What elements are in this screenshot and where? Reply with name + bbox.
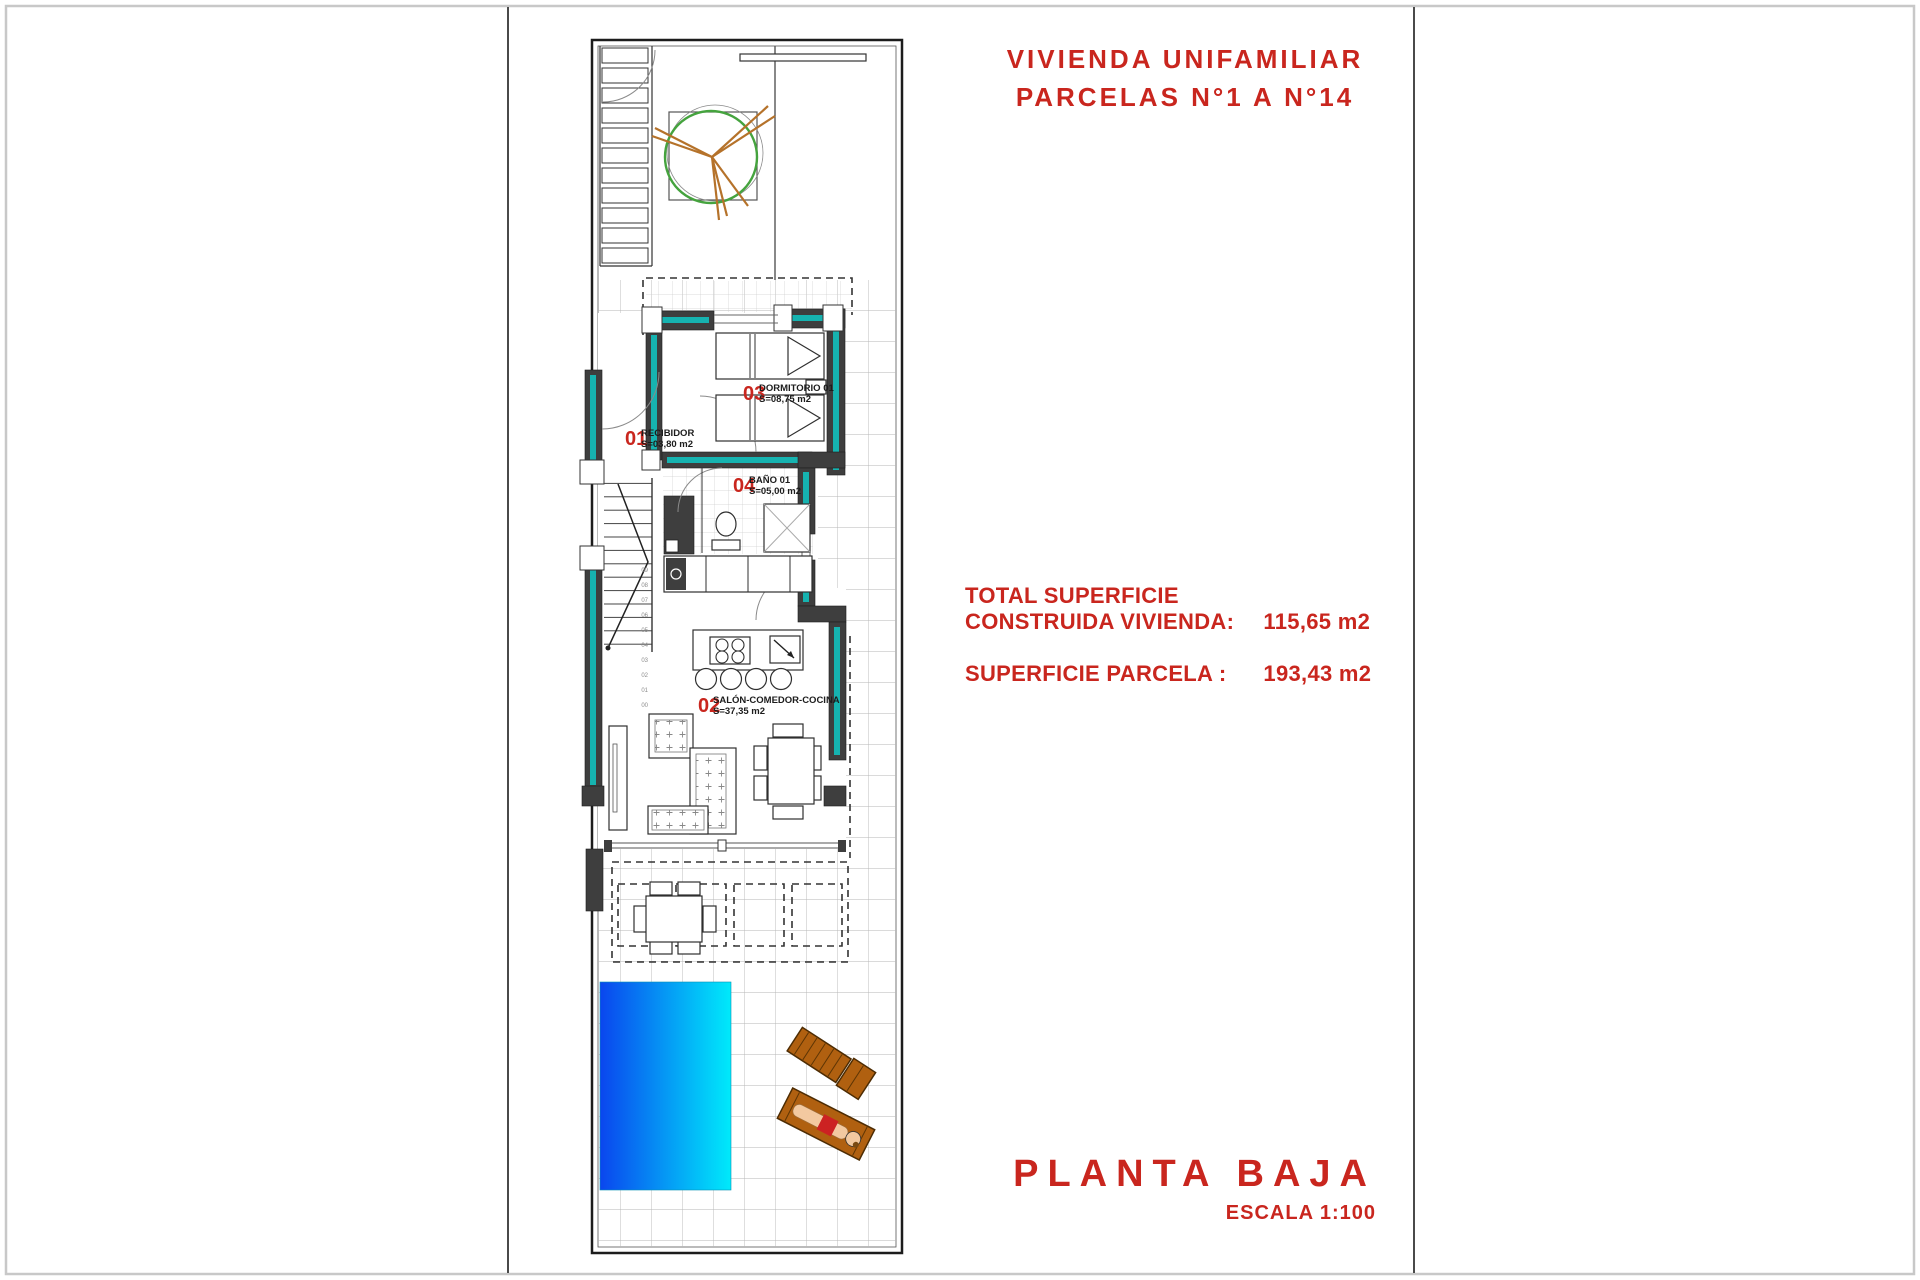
plan-footer: PLANTA BAJA ESCALA 1:100 [1000,1152,1376,1225]
floor-plan-drawing: 09 08 07 06 05 04 03 02 01 00 [0,0,1920,1280]
built-surface-value: 115,65 m2 [1263,609,1370,634]
room-area-salon: S=37,35 m2 [713,706,765,717]
page-border [6,6,1914,1274]
drawing-title: VIVIENDA UNIFAMILIAR PARCELAS N°1 A N°14 [960,40,1410,116]
surface-summary: TOTAL SUPERFICIE CONSTRUIDA VIVIENDA: 11… [965,584,1371,688]
svg-text:04: 04 [641,643,648,649]
swimming-pool [600,982,731,1190]
summary-line-2: CONSTRUIDA VIVIENDA: 115,65 m2 [965,610,1371,634]
svg-text:03: 03 [641,658,648,664]
tv-cabinet [609,726,627,830]
drawing-sheet: 09 08 07 06 05 04 03 02 01 00 [0,0,1920,1280]
built-surface-label: CONSTRUIDA VIVIENDA: [965,610,1257,634]
driveway-slats [602,48,648,263]
svg-text:07: 07 [641,598,648,604]
plot-surface-value: 193,43 m2 [1263,661,1371,686]
room-area-dormitorio: S=08,75 m2 [759,394,811,405]
svg-text:06: 06 [641,613,648,619]
toilet [716,512,736,536]
plan-scale: ESCALA 1:100 [1000,1202,1376,1225]
title-line-1: VIVIENDA UNIFAMILIAR [960,40,1410,78]
svg-text:08: 08 [641,583,648,589]
room-name-bano: BAÑO 01 [749,475,791,486]
svg-text:09: 09 [641,568,648,574]
room-area-bano: S=05,00 m2 [749,486,801,497]
hob [710,637,750,664]
room-name-recibidor: RECIBIDOR [641,428,694,439]
summary-line-1: TOTAL SUPERFICIE [965,584,1371,608]
svg-text:00: 00 [641,703,648,709]
room-name-dormitorio: DORMITORIO 01 [759,383,834,394]
room-name-salon: SALÓN-COMEDOR-COCINA [713,694,840,706]
entry-tiles [646,281,852,312]
plan-name: PLANTA BAJA [1000,1152,1376,1196]
svg-text:05: 05 [641,628,648,634]
entry-canopy [740,54,866,61]
title-line-2: PARCELAS N°1 A N°14 [960,78,1410,116]
svg-text:02: 02 [641,673,648,679]
room-area-recibidor: S=03,80 m2 [641,439,693,450]
plot-surface-label: SUPERFICIE PARCELA : [965,662,1257,686]
svg-text:01: 01 [641,688,648,694]
summary-line-3: SUPERFICIE PARCELA : 193,43 m2 [965,662,1371,686]
